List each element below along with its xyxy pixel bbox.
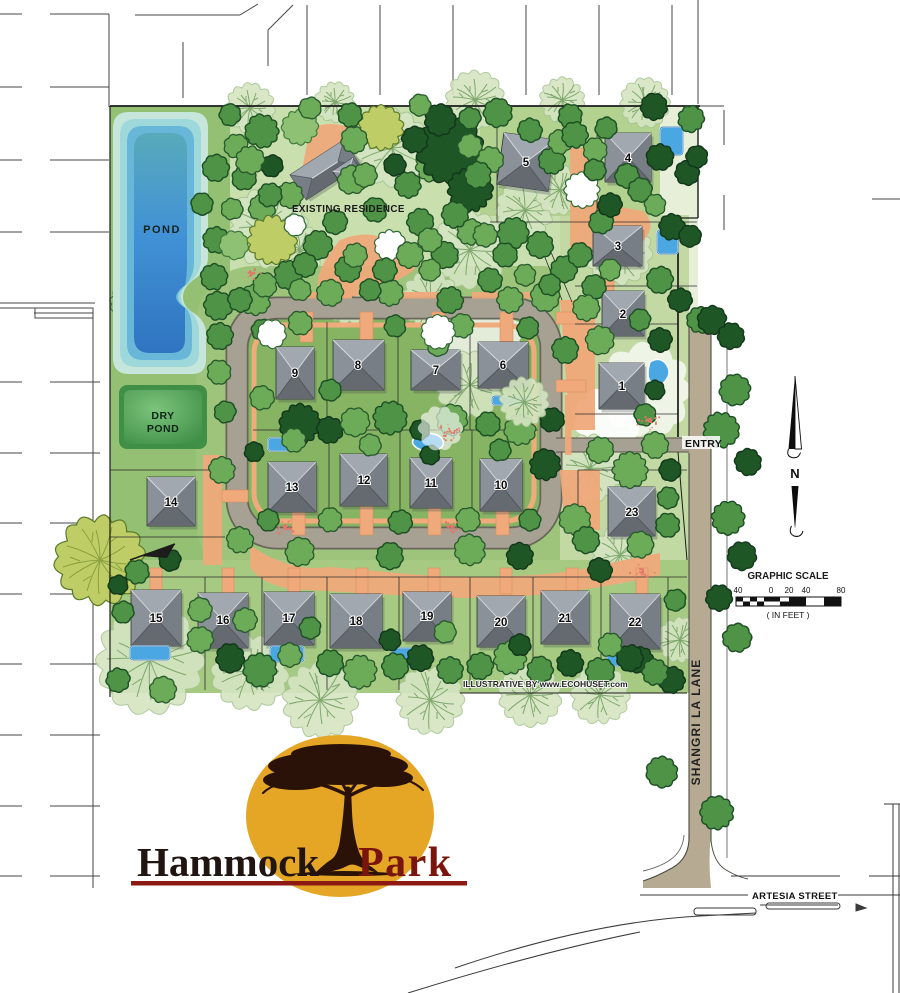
svg-text:5: 5	[523, 157, 530, 169]
svg-text:1: 1	[619, 381, 626, 393]
svg-text:15: 15	[150, 613, 163, 625]
svg-text:POND: POND	[147, 423, 179, 435]
svg-text:3: 3	[615, 241, 621, 253]
svg-text:12: 12	[358, 475, 371, 487]
svg-text:23: 23	[626, 507, 639, 519]
svg-text:14: 14	[165, 497, 178, 509]
svg-text:N: N	[790, 466, 799, 481]
svg-text:6: 6	[500, 360, 506, 372]
svg-text:13: 13	[286, 482, 299, 494]
svg-text:ARTESIA STREET: ARTESIA STREET	[752, 891, 838, 902]
svg-text:2: 2	[620, 309, 626, 321]
svg-text:ILLUSTRATIVE BY www.ECOHUSET.c: ILLUSTRATIVE BY www.ECOHUSET.com	[463, 679, 628, 689]
svg-text:18: 18	[350, 616, 363, 628]
svg-text:EXISTING RESIDENCE: EXISTING RESIDENCE	[292, 204, 405, 215]
svg-text:ENTRY: ENTRY	[685, 438, 722, 450]
svg-text:GRAPHIC SCALE: GRAPHIC SCALE	[747, 571, 829, 582]
svg-text:SHANGRI LA LANE: SHANGRI LA LANE	[689, 659, 703, 786]
svg-text:21: 21	[559, 613, 572, 625]
svg-text:Park: Park	[358, 840, 453, 886]
svg-text:16: 16	[217, 615, 230, 627]
svg-text:11: 11	[425, 478, 438, 490]
svg-text:DRY: DRY	[151, 410, 174, 422]
svg-text:17: 17	[283, 613, 296, 625]
svg-text:19: 19	[421, 611, 434, 623]
svg-text:9: 9	[292, 368, 298, 380]
svg-text:7: 7	[433, 365, 439, 377]
svg-text:80: 80	[837, 586, 846, 595]
svg-text:( IN FEET ): ( IN FEET )	[767, 610, 810, 620]
svg-text:40: 40	[734, 586, 743, 595]
svg-text:Hammock: Hammock	[137, 839, 319, 885]
svg-text:22: 22	[629, 617, 642, 629]
svg-text:20: 20	[785, 586, 794, 595]
svg-text:40: 40	[802, 586, 811, 595]
svg-text:POND: POND	[143, 224, 181, 236]
svg-text:0: 0	[769, 586, 774, 595]
svg-text:10: 10	[495, 480, 508, 492]
svg-text:8: 8	[355, 360, 362, 372]
svg-text:20: 20	[495, 617, 508, 629]
